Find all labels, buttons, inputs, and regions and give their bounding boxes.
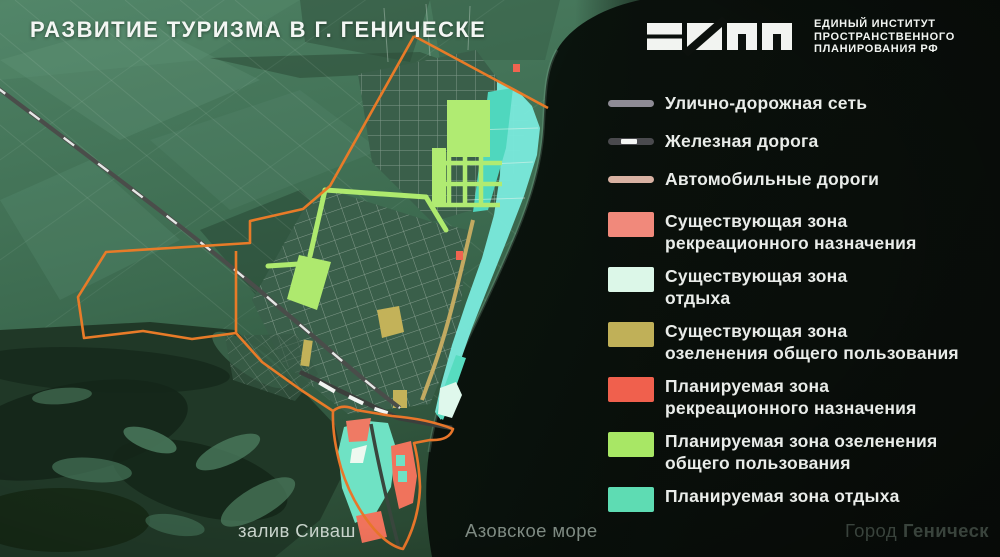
zone-label-line1: Существующая зона xyxy=(665,211,917,233)
legend-line-items: Улично-дорожная сеть Железная дорога Авт… xyxy=(608,84,988,198)
zone-label-line2: озеленения общего пользования xyxy=(665,343,959,365)
zone-label-line1: Планируемая зона озеленения xyxy=(665,431,937,453)
zone-label-line1: Планируемая зона xyxy=(665,376,917,398)
zone-label-line2: рекреационного назначения xyxy=(665,398,917,420)
zone-swatch xyxy=(608,322,654,347)
zone-label-line2: рекреационного назначения xyxy=(665,233,917,255)
legend-label: Железная дорога xyxy=(665,131,818,152)
institute-name-line1: ЕДИНЫЙ ИНСТИТУТ xyxy=(814,18,955,31)
zone-label-line1: Существующая зона xyxy=(665,321,959,343)
legend-label: Автомобильные дороги xyxy=(665,169,879,190)
legend-item-railway: Железная дорога xyxy=(608,122,988,160)
bay-label: залив Сиваш xyxy=(238,520,356,542)
sea-label: Азовское море xyxy=(465,520,598,542)
legend-item-auto-roads: Автомобильные дороги xyxy=(608,160,988,198)
legend-item-street-network: Улично-дорожная сеть xyxy=(608,84,988,122)
zone-swatch xyxy=(608,267,654,292)
institute-name-line2: ПРОСТРАНСТВЕННОГО xyxy=(814,31,955,44)
city-label: ГородГеническ xyxy=(845,520,989,542)
zone-label-line2: общего пользования xyxy=(665,453,937,475)
map-legend: Улично-дорожная сеть Железная дорога Авт… xyxy=(608,84,988,542)
zone-label-line2: отдыха xyxy=(665,288,847,310)
zone-label-line1: Существующая зона xyxy=(665,266,847,288)
street-network-swatch xyxy=(608,100,654,107)
legend-item-planned-greening: Планируемая зона озеленения общего польз… xyxy=(608,432,988,487)
legend-item-existing-recreation: Существующая зона рекреационного назначе… xyxy=(608,212,988,267)
city-label-name: Геническ xyxy=(903,520,989,541)
zone-swatch xyxy=(608,487,654,512)
zone-swatch xyxy=(608,212,654,237)
institute-name: ЕДИНЫЙ ИНСТИТУТ ПРОСТРАНСТВЕННОГО ПЛАНИР… xyxy=(814,18,955,56)
legend-zone-items: Существующая зона рекреационного назначе… xyxy=(608,212,988,542)
railway-swatch xyxy=(608,138,654,145)
zone-label: Существующая зона отдыха xyxy=(665,266,847,309)
institute-logo: ЕДИНЫЙ ИНСТИТУТ ПРОСТРАНСТВЕННОГО ПЛАНИР… xyxy=(645,14,955,56)
zone-swatch xyxy=(608,377,654,402)
legend-item-existing-greening: Существующая зона озеленения общего поль… xyxy=(608,322,988,377)
zone-swatch xyxy=(608,432,654,457)
zone-label: Планируемая зона озеленения общего польз… xyxy=(665,431,937,474)
page-title: РАЗВИТИЕ ТУРИЗМА В Г. ГЕНИЧЕСКЕ xyxy=(30,17,486,43)
institute-name-line3: ПЛАНИРОВАНИЯ РФ xyxy=(814,43,955,56)
city-label-prefix: Город xyxy=(845,520,897,541)
zone-label: Планируемая зона отдыха xyxy=(665,486,900,508)
zone-label-line1: Планируемая зона отдыха xyxy=(665,486,900,508)
auto-roads-swatch xyxy=(608,176,654,183)
zone-label: Существующая зона озеленения общего поль… xyxy=(665,321,959,364)
eipp-logo-icon xyxy=(645,14,797,56)
zone-label: Существующая зона рекреационного назначе… xyxy=(665,211,917,254)
legend-item-existing-rest: Существующая зона отдыха xyxy=(608,267,988,322)
slide: РАЗВИТИЕ ТУРИЗМА В Г. ГЕНИЧЕСКЕ ЕДИНЫЙ И… xyxy=(0,0,1000,557)
legend-label: Улично-дорожная сеть xyxy=(665,93,867,114)
zone-label: Планируемая зона рекреационного назначен… xyxy=(665,376,917,419)
legend-item-planned-recreation: Планируемая зона рекреационного назначен… xyxy=(608,377,988,432)
railway-swatch-dash xyxy=(621,139,637,144)
